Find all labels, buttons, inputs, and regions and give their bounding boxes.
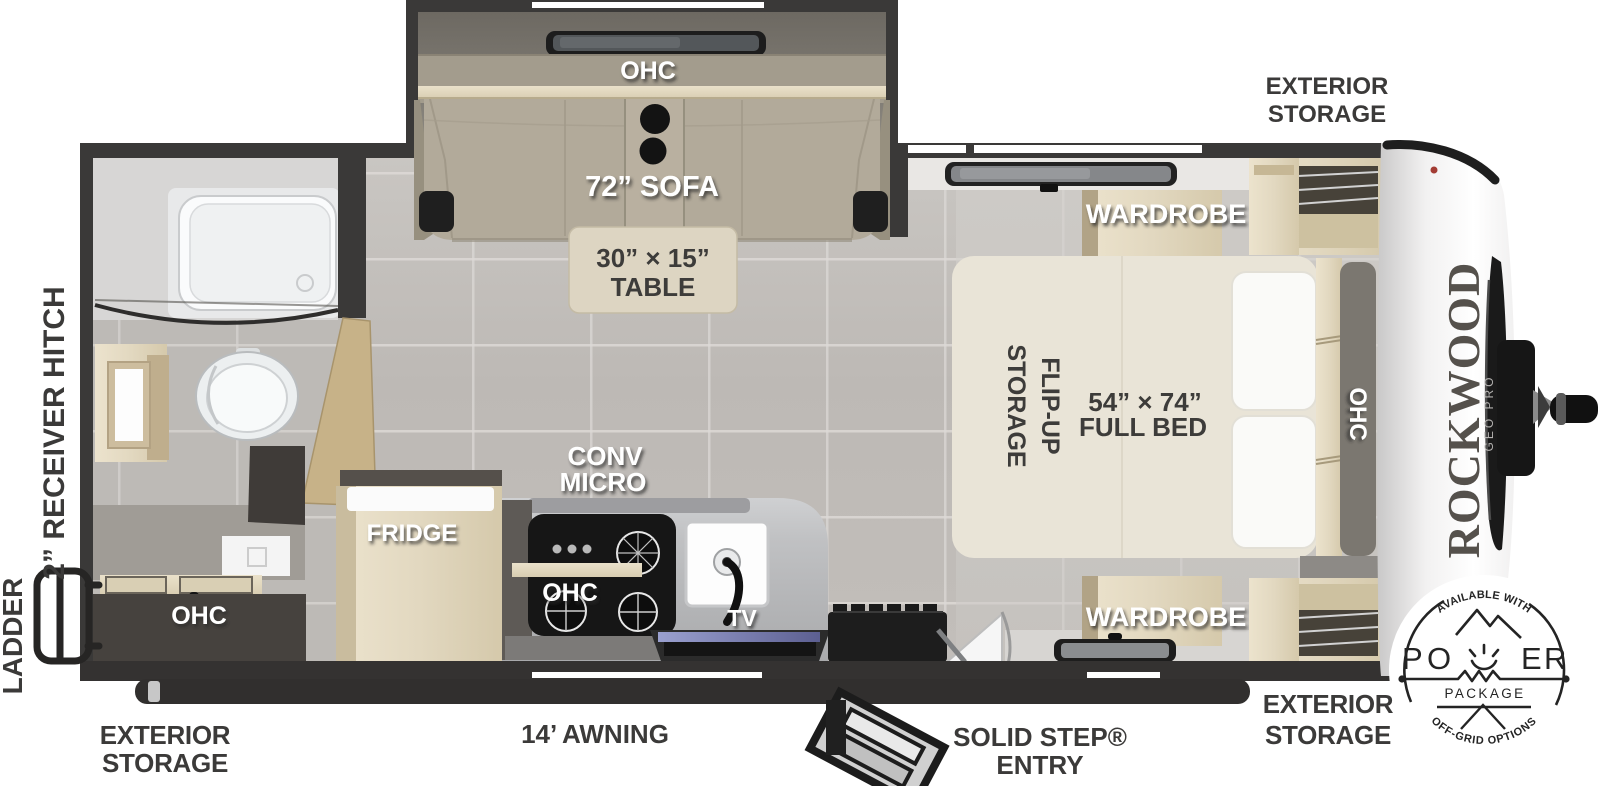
svg-text:FULL BED: FULL BED: [1079, 412, 1207, 442]
svg-text:OHC: OHC: [1344, 387, 1371, 440]
svg-text:EXTERIOR: EXTERIOR: [100, 720, 231, 750]
svg-text:WARDROBE: WARDROBE: [1086, 199, 1247, 229]
svg-text:EXTERIOR: EXTERIOR: [1266, 73, 1389, 100]
svg-text:GEO PRO: GEO PRO: [1482, 374, 1496, 451]
svg-text:STORAGE: STORAGE: [1265, 720, 1391, 750]
svg-text:WARDROBE: WARDROBE: [1086, 602, 1247, 632]
svg-text:FLIP-UP: FLIP-UP: [1036, 357, 1064, 454]
svg-text:72” SOFA: 72” SOFA: [585, 171, 719, 203]
svg-text:OHC: OHC: [542, 579, 598, 607]
svg-text:MICRO: MICRO: [560, 467, 647, 497]
svg-text:P: P: [1402, 641, 1423, 676]
svg-text:14’ AWNING: 14’ AWNING: [521, 719, 669, 749]
svg-text:STORAGE: STORAGE: [102, 748, 228, 778]
svg-text:FRIDGE: FRIDGE: [367, 520, 458, 547]
svg-text:O: O: [1427, 641, 1451, 676]
svg-text:E: E: [1521, 641, 1542, 676]
svg-text:TABLE: TABLE: [611, 272, 696, 302]
svg-text:30” × 15”: 30” × 15”: [596, 243, 709, 273]
svg-text:TV: TV: [727, 605, 757, 631]
svg-text:EXTERIOR: EXTERIOR: [1263, 689, 1394, 719]
svg-text:2” RECEIVER HITCH: 2” RECEIVER HITCH: [38, 286, 71, 579]
svg-text:R: R: [1544, 641, 1566, 676]
svg-text:STORAGE: STORAGE: [1268, 101, 1386, 128]
svg-text:STORAGE: STORAGE: [1002, 344, 1030, 467]
svg-text:OHC: OHC: [171, 602, 227, 630]
svg-text:SOLID STEP®: SOLID STEP®: [953, 722, 1127, 752]
svg-text:ENTRY: ENTRY: [996, 750, 1083, 780]
svg-text:PACKAGE: PACKAGE: [1444, 686, 1525, 701]
svg-text:LADDER: LADDER: [0, 578, 28, 695]
svg-text:OHC: OHC: [620, 57, 676, 85]
